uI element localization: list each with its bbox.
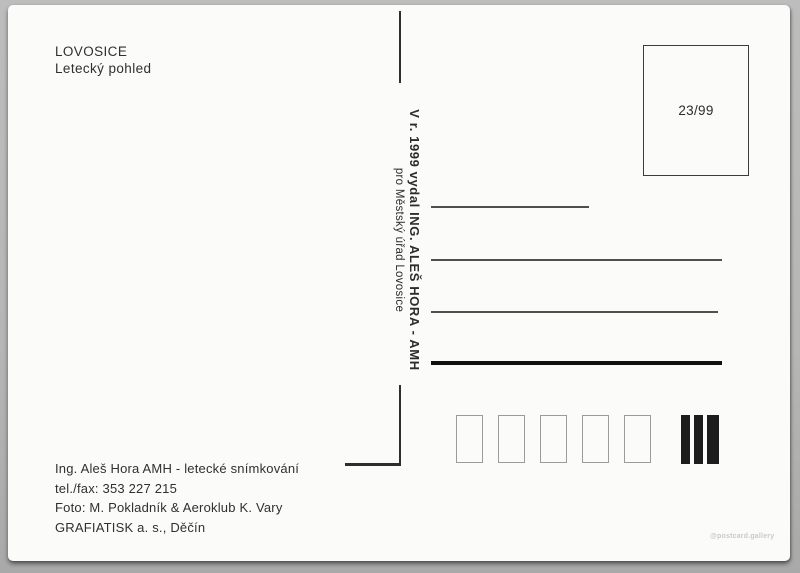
postcard-card: LOVOSICE Letecký pohled V r. 1999 vydal …	[8, 5, 790, 561]
code-bar	[681, 415, 690, 464]
publisher-line-bold: V r. 1999 vydal ING. ALEŠ HORA - AMH	[406, 95, 423, 385]
credit-line-telfax: tel./fax: 353 227 215	[55, 479, 299, 499]
address-line-3	[431, 311, 718, 313]
postal-code-box	[624, 415, 651, 463]
postal-code-box	[498, 415, 525, 463]
postal-code-box	[582, 415, 609, 463]
code-bar	[707, 415, 719, 464]
address-line-2	[431, 259, 722, 261]
center-divider-top-segment	[399, 11, 401, 83]
postal-code-box	[456, 415, 483, 463]
address-line-4-thick	[431, 361, 722, 365]
scanned-postcard-back: { "postcard": { "title": "LOVOSICE", "su…	[0, 0, 800, 573]
center-divider-foot	[345, 463, 401, 466]
center-divider-bottom-segment	[399, 385, 401, 465]
credit-line-publisher: Ing. Aleš Hora AMH - letecké snímkování	[55, 459, 299, 479]
caption-block: LOVOSICE Letecký pohled	[55, 43, 151, 77]
postal-code-box	[540, 415, 567, 463]
publisher-line-small: pro Městský úřad Lovosice	[392, 95, 406, 385]
postcard-title: LOVOSICE	[55, 43, 151, 60]
stamp-box: 23/99	[643, 45, 749, 176]
watermark-text: @postcard.gallery	[710, 533, 774, 540]
postcard-subtitle: Letecký pohled	[55, 60, 151, 77]
publisher-imprint-rotated: V r. 1999 vydal ING. ALEŠ HORA - AMH pro…	[389, 95, 423, 385]
address-line-1	[431, 206, 589, 208]
code-bar	[694, 415, 703, 464]
credits-block: Ing. Aleš Hora AMH - letecké snímkování …	[55, 459, 299, 537]
stamp-box-label: 23/99	[678, 103, 713, 118]
credit-line-printer: GRAFIATISK a. s., Děčín	[55, 518, 299, 538]
credit-line-photo: Foto: M. Pokladník & Aeroklub K. Vary	[55, 498, 299, 518]
